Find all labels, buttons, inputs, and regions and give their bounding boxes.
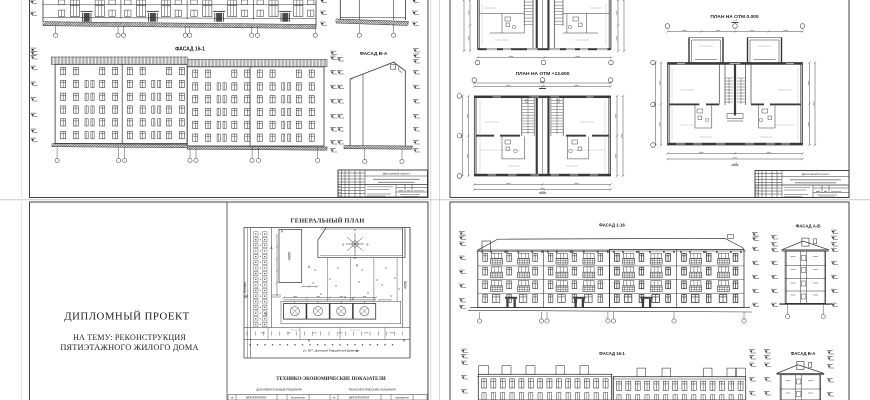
svg-text:показатели: показатели xyxy=(395,397,409,400)
svg-text:ПЛАН НА ОТМ +13.600: ПЛАН НА ОТМ +13.600 xyxy=(516,71,570,77)
svg-text:ФАСАД 1-16: ФАСАД 1-16 xyxy=(599,223,625,228)
svg-text:№: № xyxy=(333,397,336,400)
svg-text:Количество: Количество xyxy=(291,396,305,400)
svg-text:—I: —I xyxy=(733,161,737,165)
svg-text:В: В xyxy=(366,243,368,247)
svg-text:Дипломный проект: Дипломный проект xyxy=(802,172,830,176)
svg-text:МЕРОПРИЯТИЯ: МЕРОПРИЯТИЯ xyxy=(246,396,266,400)
svg-text:Ю: Ю xyxy=(353,256,356,260)
svg-text:ФАСАД В-А: ФАСАД В-А xyxy=(360,51,388,57)
svg-text:ФАСАД В-А: ФАСАД В-А xyxy=(791,351,816,356)
svg-text:ФАСАД 16-1: ФАСАД 16-1 xyxy=(599,351,625,356)
svg-text:ТЕХНОЛОГИЧЕСКИЕ УКАЗАНИЯ: ТЕХНОЛОГИЧЕСКИЕ УКАЗАНИЯ xyxy=(348,388,395,392)
svg-text:З: З xyxy=(342,243,344,247)
svg-text:—I: —I xyxy=(541,189,545,193)
svg-text:405К: 405К xyxy=(404,280,408,289)
svg-text:ул. 597. Донецкой Гвардейской: ул. 597. Донецкой Гвардейской Дивизии xyxy=(303,349,359,353)
svg-text:—I: —I xyxy=(733,18,737,22)
svg-text:МЕРОПРИЯТИЯ: МЕРОПРИЯТИЯ xyxy=(349,396,369,400)
svg-text:Дипломный проект: Дипломный проект xyxy=(383,172,411,176)
svg-text:№: № xyxy=(231,397,234,400)
svg-text:НА ТЕМУ: РЕКОНСТРУКЦИЯ: НА ТЕМУ: РЕКОНСТРУКЦИЯ xyxy=(73,333,186,342)
svg-text:ТЕХНИКО-ЭКОНОМИЧЕСКИЕ ПОКАЗАТЕ: ТЕХНИКО-ЭКОНОМИЧЕСКИЕ ПОКАЗАТЕЛИ xyxy=(276,377,386,382)
svg-text:—I: —I xyxy=(541,84,545,88)
svg-text:ФАСАД А-Б: ФАСАД А-Б xyxy=(796,223,821,228)
svg-text:ПЯТИЭТАЖНОГО ЖИЛОГО ДОМА: ПЯТИЭТАЖНОГО ЖИЛОГО ДОМА xyxy=(60,343,198,352)
svg-text:ГЕНЕРАЛЬНЫЙ ПЛАН: ГЕНЕРАЛЬНЫЙ ПЛАН xyxy=(291,217,365,225)
svg-text:ДОКУМЕНТАЛЬНЫЕ РЕШЕНИЯ: ДОКУМЕНТАЛЬНЫЕ РЕШЕНИЯ xyxy=(256,388,301,392)
svg-text:405К: 405К xyxy=(286,251,291,261)
svg-text:ФАСАД 16-1: ФАСАД 16-1 xyxy=(175,47,205,53)
svg-text:ДИПЛОМНЫЙ ПРОЕКТ: ДИПЛОМНЫЙ ПРОЕКТ xyxy=(64,311,190,323)
